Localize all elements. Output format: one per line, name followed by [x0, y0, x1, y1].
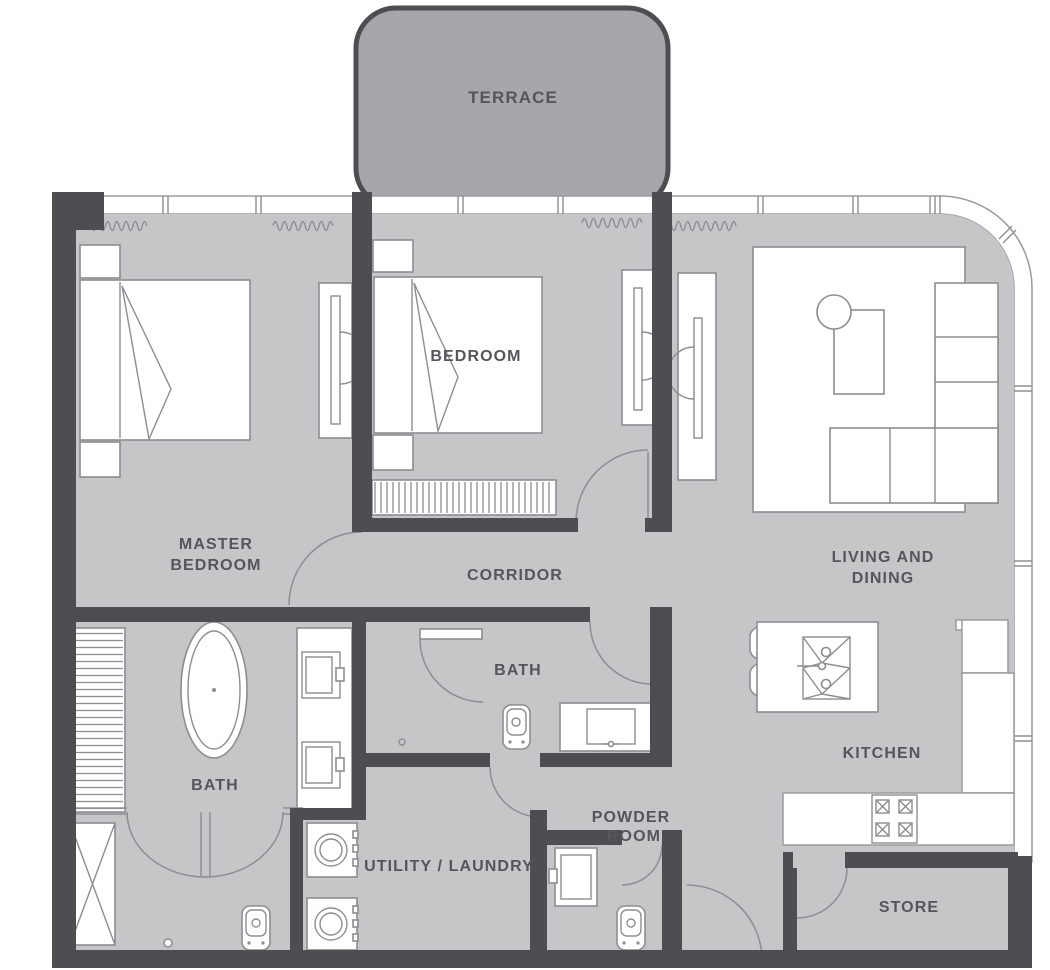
nightstand [373, 435, 413, 470]
wall [52, 607, 352, 622]
faucet-base [609, 742, 614, 747]
fridge-icon [962, 620, 1008, 673]
floor-plan-page: TERRACE [0, 0, 1050, 970]
shower-screen [420, 629, 482, 639]
wardrobe-icon [319, 283, 352, 438]
wall [352, 753, 490, 767]
wall [652, 192, 672, 532]
washer-icon [307, 898, 358, 950]
sofa [830, 428, 998, 503]
wall [52, 192, 76, 968]
wall [530, 810, 547, 950]
wall [1008, 856, 1032, 968]
wall [52, 192, 104, 230]
toilet-icon [242, 906, 270, 950]
room-terrace: TERRACE [356, 8, 668, 208]
wall [783, 852, 793, 868]
wall [52, 950, 1032, 968]
toilet-icon [617, 906, 645, 950]
room-label-kitchen: KITCHEN [843, 745, 922, 762]
faucet-icon [336, 668, 344, 681]
floor-plan: TERRACE [0, 0, 1050, 970]
sink-drain [822, 648, 831, 657]
faucet-base [819, 663, 826, 670]
nightstand [373, 240, 413, 272]
wall [352, 518, 578, 532]
room-label-powder-room-2: ROOM [607, 828, 661, 845]
wall [540, 753, 672, 767]
room-label-utility-laundry: UTILITY / LAUNDRY [364, 858, 534, 875]
wall [290, 815, 303, 950]
nightstand [80, 245, 120, 278]
tv-console [678, 273, 716, 480]
kitchen-counter-right [962, 673, 1014, 793]
room-label-terrace: TERRACE [468, 88, 558, 107]
wall [783, 868, 797, 950]
toilet-icon [503, 705, 530, 749]
nightstand [80, 442, 120, 477]
room-label-master-bath: BATH [191, 777, 239, 794]
room-label-bedroom: BEDROOM [430, 348, 521, 365]
wall [845, 852, 1018, 868]
wall [352, 192, 372, 532]
wall [352, 622, 366, 820]
wall [662, 830, 682, 845]
side-lamp-icon [817, 295, 851, 329]
room-label-living-dining: LIVING AND [832, 549, 935, 566]
room-label-living-dining-2: DINING [852, 570, 915, 587]
faucet-icon [549, 869, 557, 883]
linen-hatch [72, 630, 123, 810]
wardrobe-hatch [374, 482, 554, 513]
washer-icon [307, 823, 358, 877]
bed [80, 280, 250, 440]
room-label-master-bedroom: MASTER [179, 536, 253, 553]
bathtub-drain [212, 688, 216, 692]
terrace-deck [356, 8, 668, 208]
room-label-master-bedroom-2: BEDROOM [170, 557, 261, 574]
room-label-corridor: CORRIDOR [467, 567, 563, 584]
wall [662, 845, 682, 950]
door-stop [164, 939, 172, 947]
room-label-powder-room: POWDER [592, 809, 671, 826]
room-label-store: STORE [879, 899, 939, 916]
wall [645, 518, 672, 532]
faucet-icon [336, 758, 344, 771]
wall [650, 607, 672, 767]
sink-drain [822, 680, 831, 689]
window-top [76, 196, 940, 214]
room-label-bath: BATH [494, 662, 542, 679]
wall [366, 607, 590, 622]
